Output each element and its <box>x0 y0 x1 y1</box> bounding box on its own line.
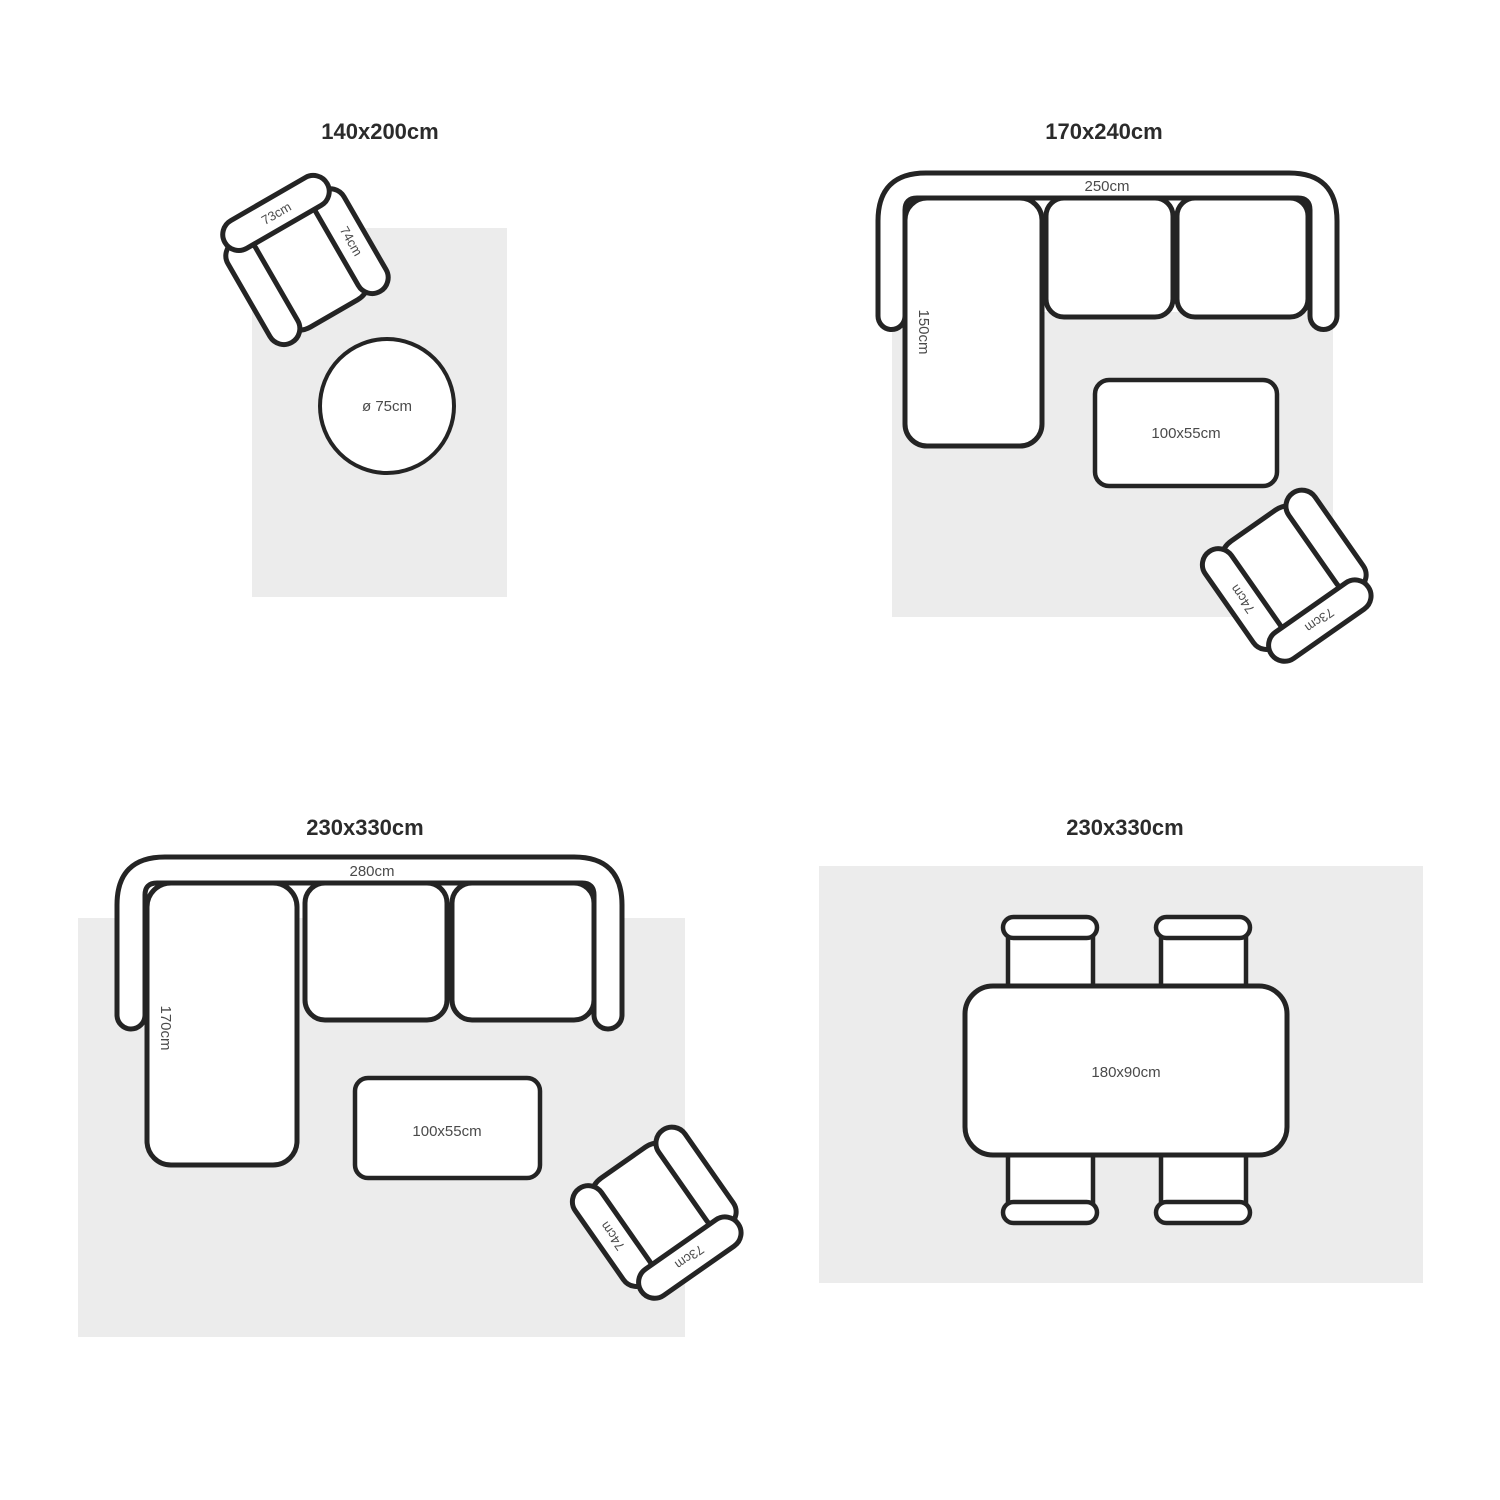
panel-title: 170x240cm <box>1045 119 1162 144</box>
dining-chair-bottom-right <box>1156 1150 1250 1223</box>
sofa-width-label: 280cm <box>349 863 394 880</box>
panel-title: 230x330cm <box>1066 815 1183 840</box>
sofa-chaise-label: 150cm <box>915 309 932 354</box>
panel-230x330-dining: 230x330cm 180x90cm <box>819 815 1423 1283</box>
dining-chair-backrest <box>1156 917 1250 938</box>
dining-chair-backrest <box>1156 1202 1250 1223</box>
sofa-width-label: 250cm <box>1084 178 1129 195</box>
panel-title: 140x200cm <box>321 119 438 144</box>
panel-170x240: 170x240cm 250cm 150cm 100x55cm 73cm 74cm <box>878 119 1384 672</box>
panel-title: 230x330cm <box>306 815 423 840</box>
dining-chair-bottom-left <box>1003 1150 1097 1223</box>
sofa-cushion <box>305 883 447 1020</box>
sofa-cushion <box>1046 198 1173 317</box>
panel-230x330-sofa: 230x330cm 280cm 170cm 100x55cm 73cm 74cm <box>78 815 754 1337</box>
dining-chair-top-left <box>1003 917 1097 990</box>
rug-size-guide: 140x200cm 73cm 74cm ø 75cm 170x240cm 250… <box>0 0 1500 1500</box>
dining-chair-top-right <box>1156 917 1250 990</box>
sofa-cushion <box>1177 198 1308 317</box>
coffee-table-label: 100x55cm <box>412 1123 481 1140</box>
sofa-cushion <box>452 883 594 1020</box>
coffee-table-label: 100x55cm <box>1151 425 1220 442</box>
panel-140x200: 140x200cm 73cm 74cm ø 75cm <box>210 119 507 597</box>
round-rug-label: ø 75cm <box>362 398 412 415</box>
dining-chair-backrest <box>1003 1202 1097 1223</box>
dining-table-label: 180x90cm <box>1091 1064 1160 1081</box>
sofa-chaise-label: 170cm <box>157 1005 174 1050</box>
dining-chair-backrest <box>1003 917 1097 938</box>
